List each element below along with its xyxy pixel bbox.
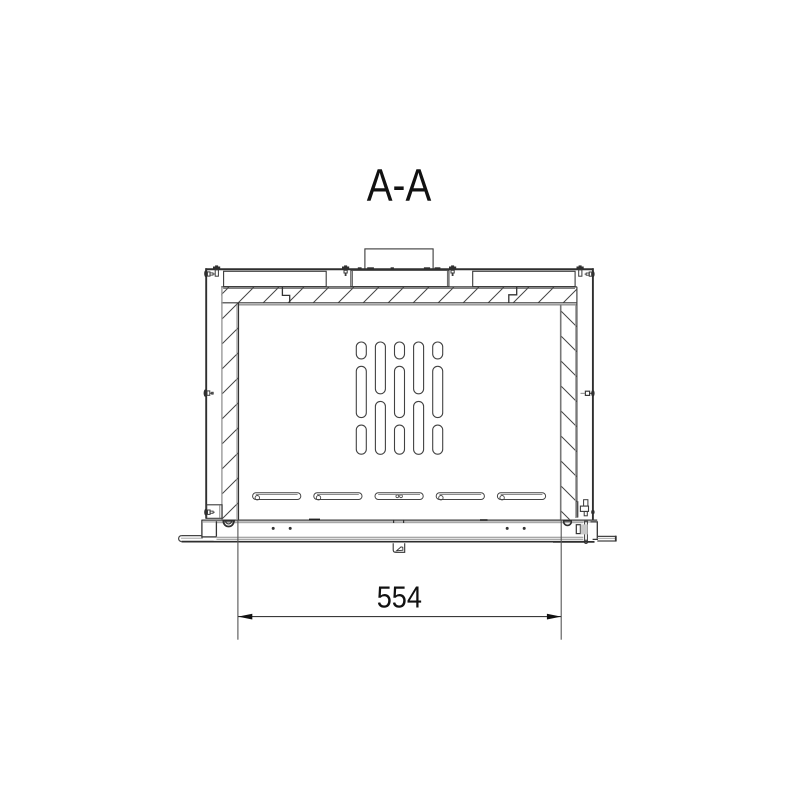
svg-text:A-A: A-A bbox=[367, 160, 432, 211]
svg-text:554: 554 bbox=[377, 581, 422, 615]
